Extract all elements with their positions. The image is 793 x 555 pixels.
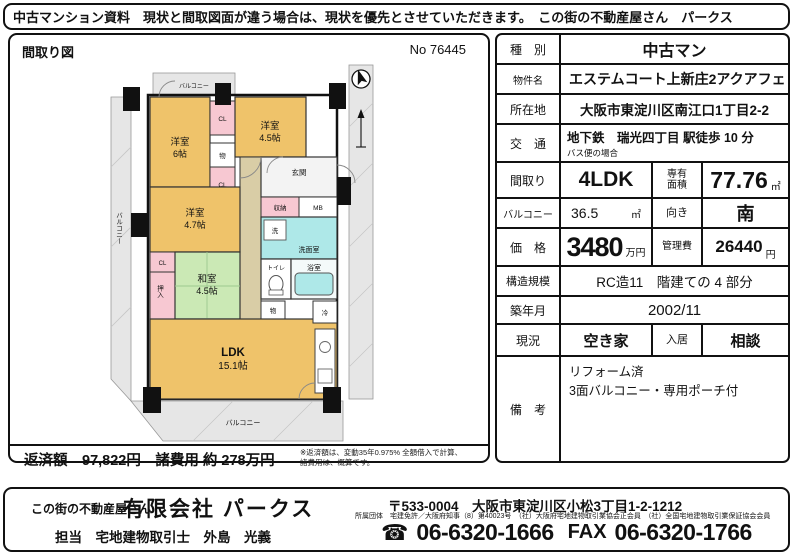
room-west1-label: 洋室: [170, 136, 189, 148]
closet-cl2-label: CL: [218, 182, 227, 189]
kitchen-sink: [320, 342, 331, 353]
repayment-note-line1: ※返済額は、変動35年0.975% 全額借入で計算、: [300, 448, 462, 458]
status-value: 空き家: [561, 325, 653, 355]
floorplan-title: 間取り図: [22, 42, 74, 61]
access-value-wrap: 地下鉄 瑞光四丁目 駅徒歩 10 分 バス便の場合: [561, 125, 788, 161]
balcony-label: バルコニー: [497, 199, 561, 227]
hallway: [240, 157, 261, 319]
balcony-left-area: [111, 97, 131, 401]
remarks-line1: リフォーム済: [569, 363, 780, 382]
divider: [10, 444, 488, 446]
toilet-label: トイレ: [267, 266, 285, 272]
bathtub: [295, 273, 333, 295]
entrance-label: 玄関: [292, 167, 307, 177]
room-tatami-size: 4.5帖: [196, 285, 218, 296]
mgmt-fee-wrap: 26440 円: [703, 229, 788, 265]
address-label: 所在地: [497, 95, 561, 123]
storage-mono2-label: 物: [270, 306, 277, 315]
room-west3-label: 洋室: [185, 207, 204, 219]
mgmt-fee-value: 26440: [715, 237, 762, 257]
type-label: 種 別: [497, 35, 561, 63]
disclaimer-text: 中古マンション資料 現状と間取図面が違う場合は、現状を優先とさせていただきます。…: [13, 7, 733, 26]
room-tatami-label: 和室: [197, 273, 216, 285]
closet-cl3-label: CL: [159, 261, 167, 267]
address-value: 大阪市東淀川区南江口1丁目2-2: [561, 95, 788, 123]
row-built: 築年月 2002/11: [497, 297, 788, 325]
room-ldk-size: 15.1帖: [218, 359, 247, 372]
structure-label: 構造規模: [497, 267, 561, 295]
balcony-unit: ㎡: [631, 206, 641, 221]
storage-shuno-label: 収納: [274, 203, 287, 212]
price-label: 価 格: [497, 229, 561, 265]
washroom-label: 洗面室: [299, 245, 320, 254]
repayment-line: 返済額 97,822円 諸費用 約 278万円: [24, 449, 275, 470]
company-name: 有限会社 パークス: [123, 493, 314, 523]
fax-number: 06-6320-1766: [615, 519, 752, 546]
area-label-line2: 面積: [667, 180, 687, 192]
property-info-table: 種 別 中古マン 物件名 エステムコート上新庄2アクアフェ 所在地 大阪市東淀川…: [495, 33, 790, 463]
type-value: 中古マン: [561, 35, 788, 63]
facing-label: 向き: [653, 199, 703, 227]
built-value: 2002/11: [561, 297, 788, 323]
row-structure: 構造規模 RC造11 階建ての 4 部分: [497, 267, 788, 297]
row-name: 物件名 エステムコート上新庄2アクアフェ: [497, 65, 788, 95]
row-layout: 間取り 4LDK 専有 面積 77.76 ㎡: [497, 163, 788, 199]
agent-line: 担当 宅地建物取引士 外島 光義: [55, 526, 271, 546]
row-price: 価 格 3480 万円 管理費 26440 円: [497, 229, 788, 267]
phone-block: ☎ 06-6320-1666 FAX 06-6320-1766: [381, 519, 752, 546]
area-label: 専有 面積: [653, 163, 703, 197]
status-label: 現況: [497, 325, 561, 355]
structure-value: RC造11 階建ての 4 部分: [561, 267, 788, 295]
layout-value: 4LDK: [561, 163, 653, 197]
area-label-line1: 専有: [667, 169, 687, 181]
row-address: 所在地 大阪市東淀川区南江口1丁目2-2: [497, 95, 788, 125]
listing-number: No 76445: [410, 42, 466, 57]
entrance-genkan: [261, 157, 337, 197]
remarks-label: 備 考: [497, 357, 561, 461]
tel-number: 06-6320-1666: [416, 519, 553, 546]
room-west2-label: 洋室: [260, 120, 279, 132]
floorplan-panel: 間取り図 No 76445: [8, 33, 490, 463]
access-sub: バス便の場合: [567, 147, 618, 159]
meter-box-label: MB: [313, 205, 323, 212]
fridge-label: 冷: [322, 308, 329, 317]
price-value-wrap: 3480 万円: [561, 229, 653, 265]
room-west2-size: 4.5帖: [259, 132, 281, 143]
movein-label: 入居: [653, 325, 703, 355]
access-value: 地下鉄 瑞光四丁目 駅徒歩 10 分: [567, 127, 754, 146]
remarks-line2: 3面バルコニー・専用ポーチ付: [569, 382, 780, 401]
closet-oshiire: [150, 272, 175, 319]
kitchen-stove: [318, 369, 332, 383]
room-west3-size: 4.7帖: [184, 219, 206, 230]
phone-icon: ☎: [381, 522, 408, 544]
fax-label: FAX: [568, 521, 607, 544]
balcony-bottom-label: バルコニー: [226, 419, 261, 427]
top-disclaimer-bar: 中古マンション資料 現状と間取図面が違う場合は、現状を優先とさせていただきます。…: [3, 3, 790, 30]
closet-cl1-label: CL: [218, 116, 227, 123]
room-ldk-label: LDK: [221, 347, 245, 359]
name-label: 物件名: [497, 65, 561, 93]
mgmt-fee-label: 管理費: [653, 229, 703, 265]
movein-value: 相談: [703, 325, 788, 355]
repayment-note-line2: 諸費用は、概算です。: [300, 458, 462, 468]
mgmt-fee-unit: 円: [766, 246, 776, 265]
balcony-top-label: バルコニー: [179, 83, 209, 90]
built-label: 築年月: [497, 297, 561, 323]
room-west1-size: 6帖: [173, 148, 187, 159]
toilet-tank: [269, 290, 283, 295]
repayment-note: ※返済額は、変動35年0.975% 全額借入で計算、 諸費用は、概算です。: [300, 448, 462, 468]
area-value: 77.76: [710, 167, 768, 194]
name-value: エステムコート上新庄2アクアフェ: [561, 65, 788, 93]
access-label: 交 通: [497, 125, 561, 161]
washer-label: 洗: [272, 226, 279, 235]
bath-label: 浴室: [307, 263, 321, 272]
area-value-wrap: 77.76 ㎡: [703, 163, 788, 197]
remarks-value-wrap: リフォーム済 3面バルコニー・専用ポーチ付: [561, 357, 788, 461]
row-balcony: バルコニー 36.5 ㎡ 向き 南: [497, 199, 788, 229]
row-type: 種 別 中古マン: [497, 35, 788, 65]
layout-label: 間取り: [497, 163, 561, 197]
balcony-value-wrap: 36.5 ㎡: [561, 199, 653, 227]
price-unit: 万円: [626, 244, 646, 265]
floorplan-drawing: 洋室 6帖 洋室 4.5帖 洋室 4.7帖 和室 4.5帖 LDK 15.1帖 …: [103, 57, 405, 443]
facing-value: 南: [703, 199, 788, 227]
balcony-value: 36.5: [571, 205, 598, 221]
area-unit: ㎡: [771, 178, 781, 197]
storage-mono1-label: 物: [219, 151, 226, 160]
row-access: 交 通 地下鉄 瑞光四丁目 駅徒歩 10 分 バス便の場合: [497, 125, 788, 163]
row-remarks: 備 考 リフォーム済 3面バルコニー・専用ポーチ付: [497, 357, 788, 461]
price-value: 3480: [566, 232, 622, 263]
room-ldk: [150, 319, 337, 399]
row-status: 現況 空き家 入居 相談: [497, 325, 788, 357]
footer-company-panel: この街の不動産屋さん 有限会社 パークス 〒533-0004 大阪市東淀川区小松…: [3, 487, 790, 552]
